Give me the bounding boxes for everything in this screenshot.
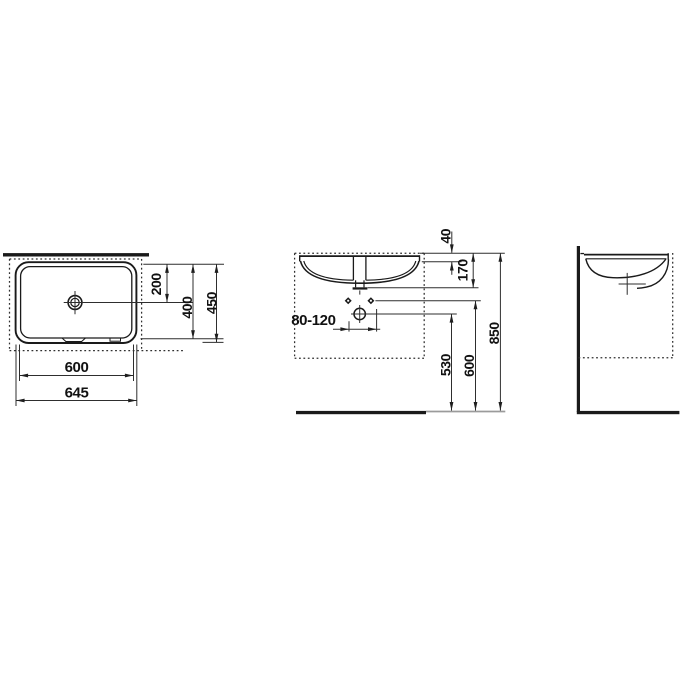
dim-trap-height: 530 [437,314,453,411]
drain-crosshair-icon [64,291,193,314]
dim-outlet-depth: 170 [455,253,476,288]
wall-line [3,253,149,256]
dim-connection-range: 80-120 [291,312,380,331]
dim-drain-offset: 200 [148,264,169,302]
dim-rim-height: 40 [438,228,454,275]
outlet-flange [353,287,368,289]
basin-section-side [584,253,669,295]
dim-label-basin-depth: 400 [179,296,195,319]
plan-view: 200 400 450 600 645 [3,253,224,406]
dim-label-overall-depth: 450 [203,291,219,314]
counter-outline-side [579,253,673,358]
floor-line-side [577,411,680,414]
installation-drawing: 200 400 450 600 645 [0,0,680,680]
dim-fixing-height: 600 [461,301,477,411]
dim-label-drain-offset: 200 [148,273,164,296]
drawing-canvas: 200 400 450 600 645 [0,0,680,680]
fixing-hole-diamond-icon [345,297,375,304]
dim-label-basin-width: 600 [65,359,89,376]
rim-detail [110,338,121,341]
dim-overall-depth: 450 [203,264,219,342]
dim-rim-level-height: 850 [486,253,503,410]
basin-section-front [299,255,419,294]
dim-overall-width: 645 [16,385,137,403]
countertop-outline [10,259,186,351]
dim-label-fixing-height: 600 [461,354,477,377]
floor-line-front [296,411,426,414]
dim-basin-depth: 400 [179,264,195,339]
waste-trap-circle-icon [351,305,369,323]
dim-label-connection-range: 80-120 [291,312,335,329]
dim-label-rim-level-height: 850 [486,322,502,345]
dim-label-overall-width: 645 [65,385,89,402]
dim-basin-width: 600 [20,359,134,377]
wall-line-side [577,246,580,412]
dim-label-rim-height: 40 [438,228,454,243]
dim-label-trap-height: 530 [437,353,453,376]
wall-tick [580,253,584,254]
dim-label-outlet-depth: 170 [455,259,471,282]
front-view: 80-120 40 170 530 600 [291,228,505,414]
side-view [577,246,680,414]
